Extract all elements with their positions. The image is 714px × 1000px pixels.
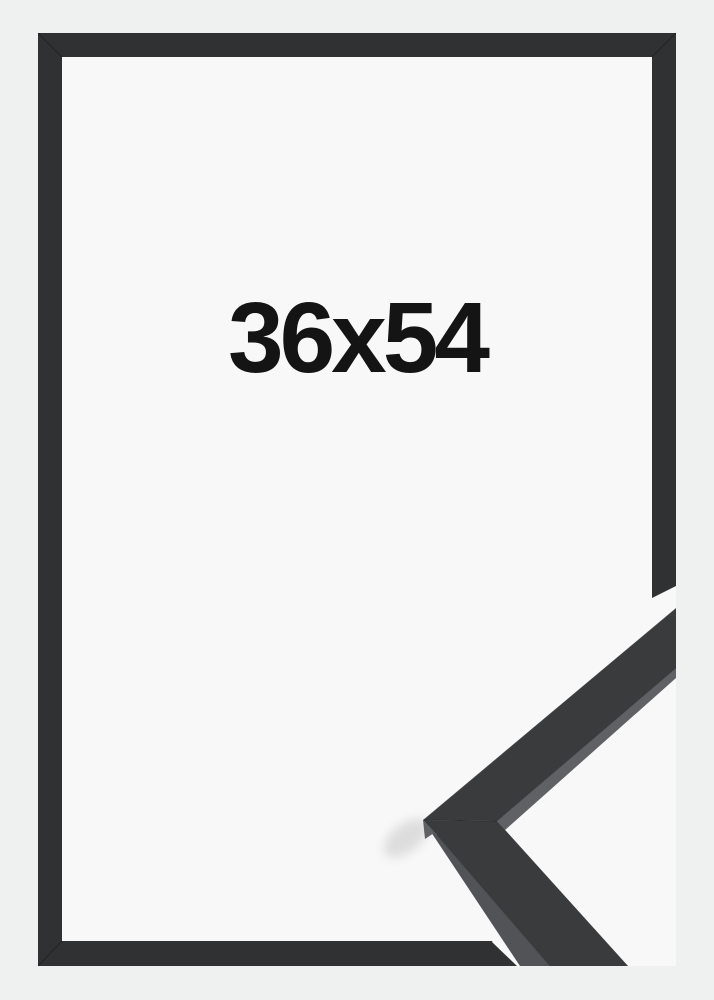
- frame-scene: [0, 0, 714, 1000]
- size-label: 36x54: [0, 288, 714, 388]
- frame-product-photo: 36x54: [0, 0, 714, 1000]
